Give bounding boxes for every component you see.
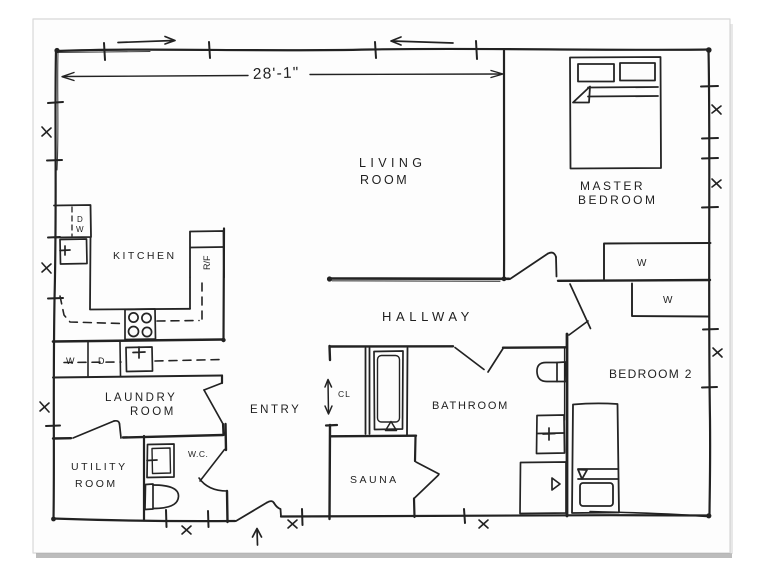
svg-text:W: W (663, 295, 673, 306)
svg-text:BEDROOM 2: BEDROOM 2 (609, 367, 693, 381)
svg-text:W: W (637, 258, 647, 269)
svg-text:BEDROOM: BEDROOM (578, 193, 658, 207)
svg-text:D: D (77, 215, 83, 224)
svg-text:LIVING: LIVING (359, 156, 426, 170)
svg-text:28'-1": 28'-1" (253, 64, 300, 83)
svg-text:ROOM: ROOM (75, 478, 118, 490)
svg-text:MASTER: MASTER (580, 179, 645, 193)
svg-text:R/F: R/F (202, 255, 212, 270)
svg-text:D: D (98, 356, 105, 366)
svg-text:KITCHEN: KITCHEN (113, 250, 177, 262)
svg-text:ROOM: ROOM (130, 406, 176, 418)
svg-text:W: W (76, 225, 84, 234)
svg-text:BATHROOM: BATHROOM (432, 400, 509, 412)
svg-text:LAUNDRY: LAUNDRY (105, 392, 177, 404)
svg-text:CL: CL (338, 389, 351, 399)
svg-text:HALLWAY: HALLWAY (382, 309, 474, 324)
svg-text:ENTRY: ENTRY (250, 404, 301, 416)
svg-text:ROOM: ROOM (360, 173, 409, 187)
svg-text:UTILITY: UTILITY (71, 461, 128, 473)
svg-text:SAUNA: SAUNA (350, 474, 399, 486)
svg-text:W.C.: W.C. (188, 449, 208, 459)
svg-text:W: W (66, 356, 75, 366)
